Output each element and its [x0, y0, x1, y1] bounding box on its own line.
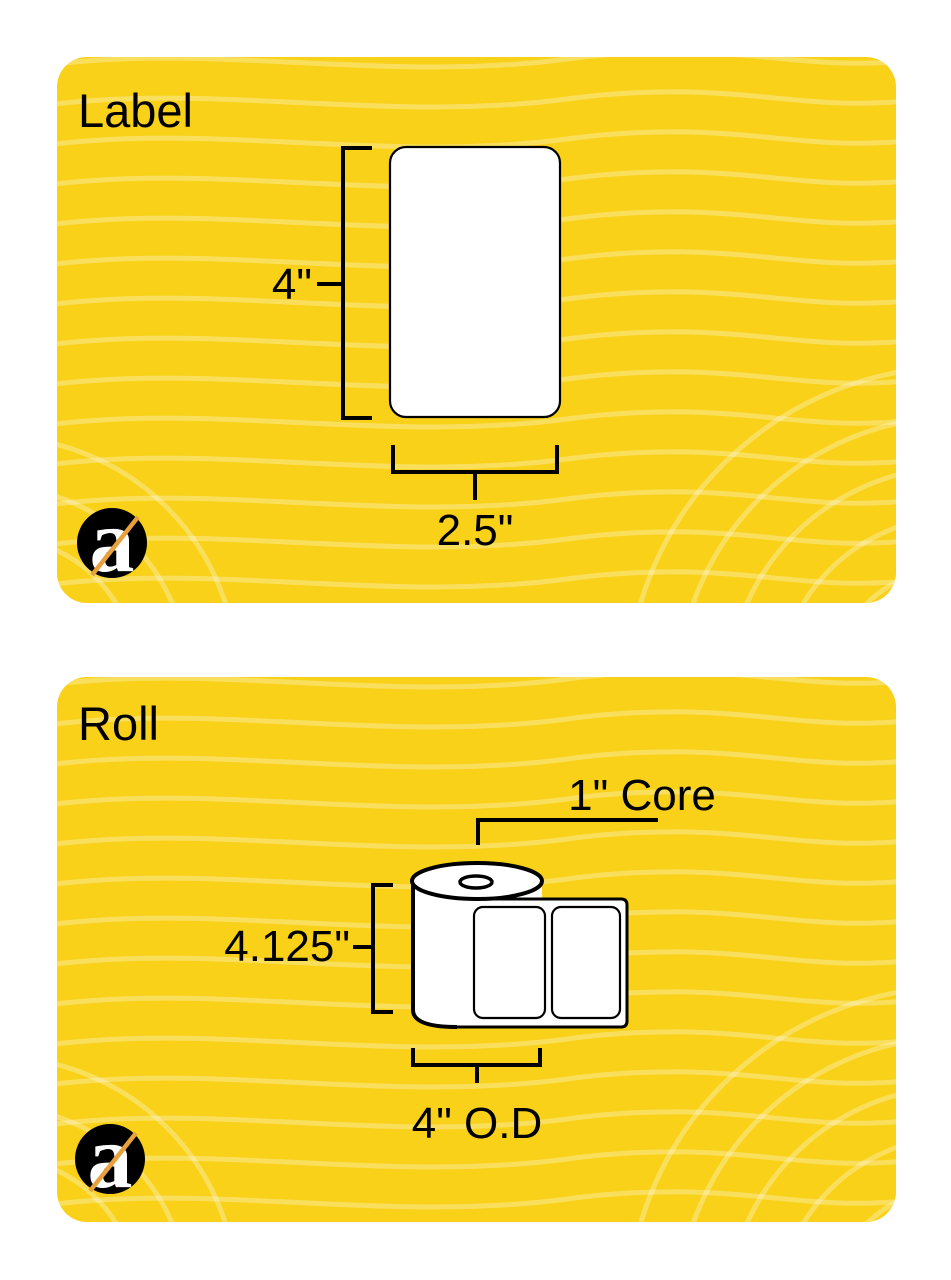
roll-height-label: 4.125" — [224, 922, 350, 971]
card-title: Roll — [78, 697, 159, 750]
strip-label-1 — [474, 907, 545, 1018]
roll-diagram: Roll 1" Core 4.125" 4" O.D a — [57, 677, 896, 1222]
height-dimension-bracket — [317, 148, 372, 418]
roll-core-hole — [460, 876, 492, 888]
logo-letter: a — [88, 1108, 133, 1207]
roll-card: Roll 1" Core 4.125" 4" O.D a — [57, 677, 896, 1222]
label-diagram: Label 4" 2.5" a — [57, 57, 896, 603]
label-card: Label 4" 2.5" a — [57, 57, 896, 603]
od-dimension-bracket — [413, 1048, 540, 1083]
label-shape — [390, 147, 560, 417]
height-dimension-label: 4" — [272, 260, 312, 309]
od-dimension-label: 4" O.D — [412, 1099, 543, 1148]
strip-label-2 — [552, 907, 620, 1018]
width-dimension-bracket — [393, 445, 557, 500]
width-dimension-label: 2.5" — [437, 506, 514, 555]
card-title: Label — [78, 84, 193, 137]
logo-letter: a — [90, 492, 135, 591]
roll-height-bracket — [353, 885, 393, 1012]
core-dimension-label: 1" Core — [568, 771, 716, 820]
